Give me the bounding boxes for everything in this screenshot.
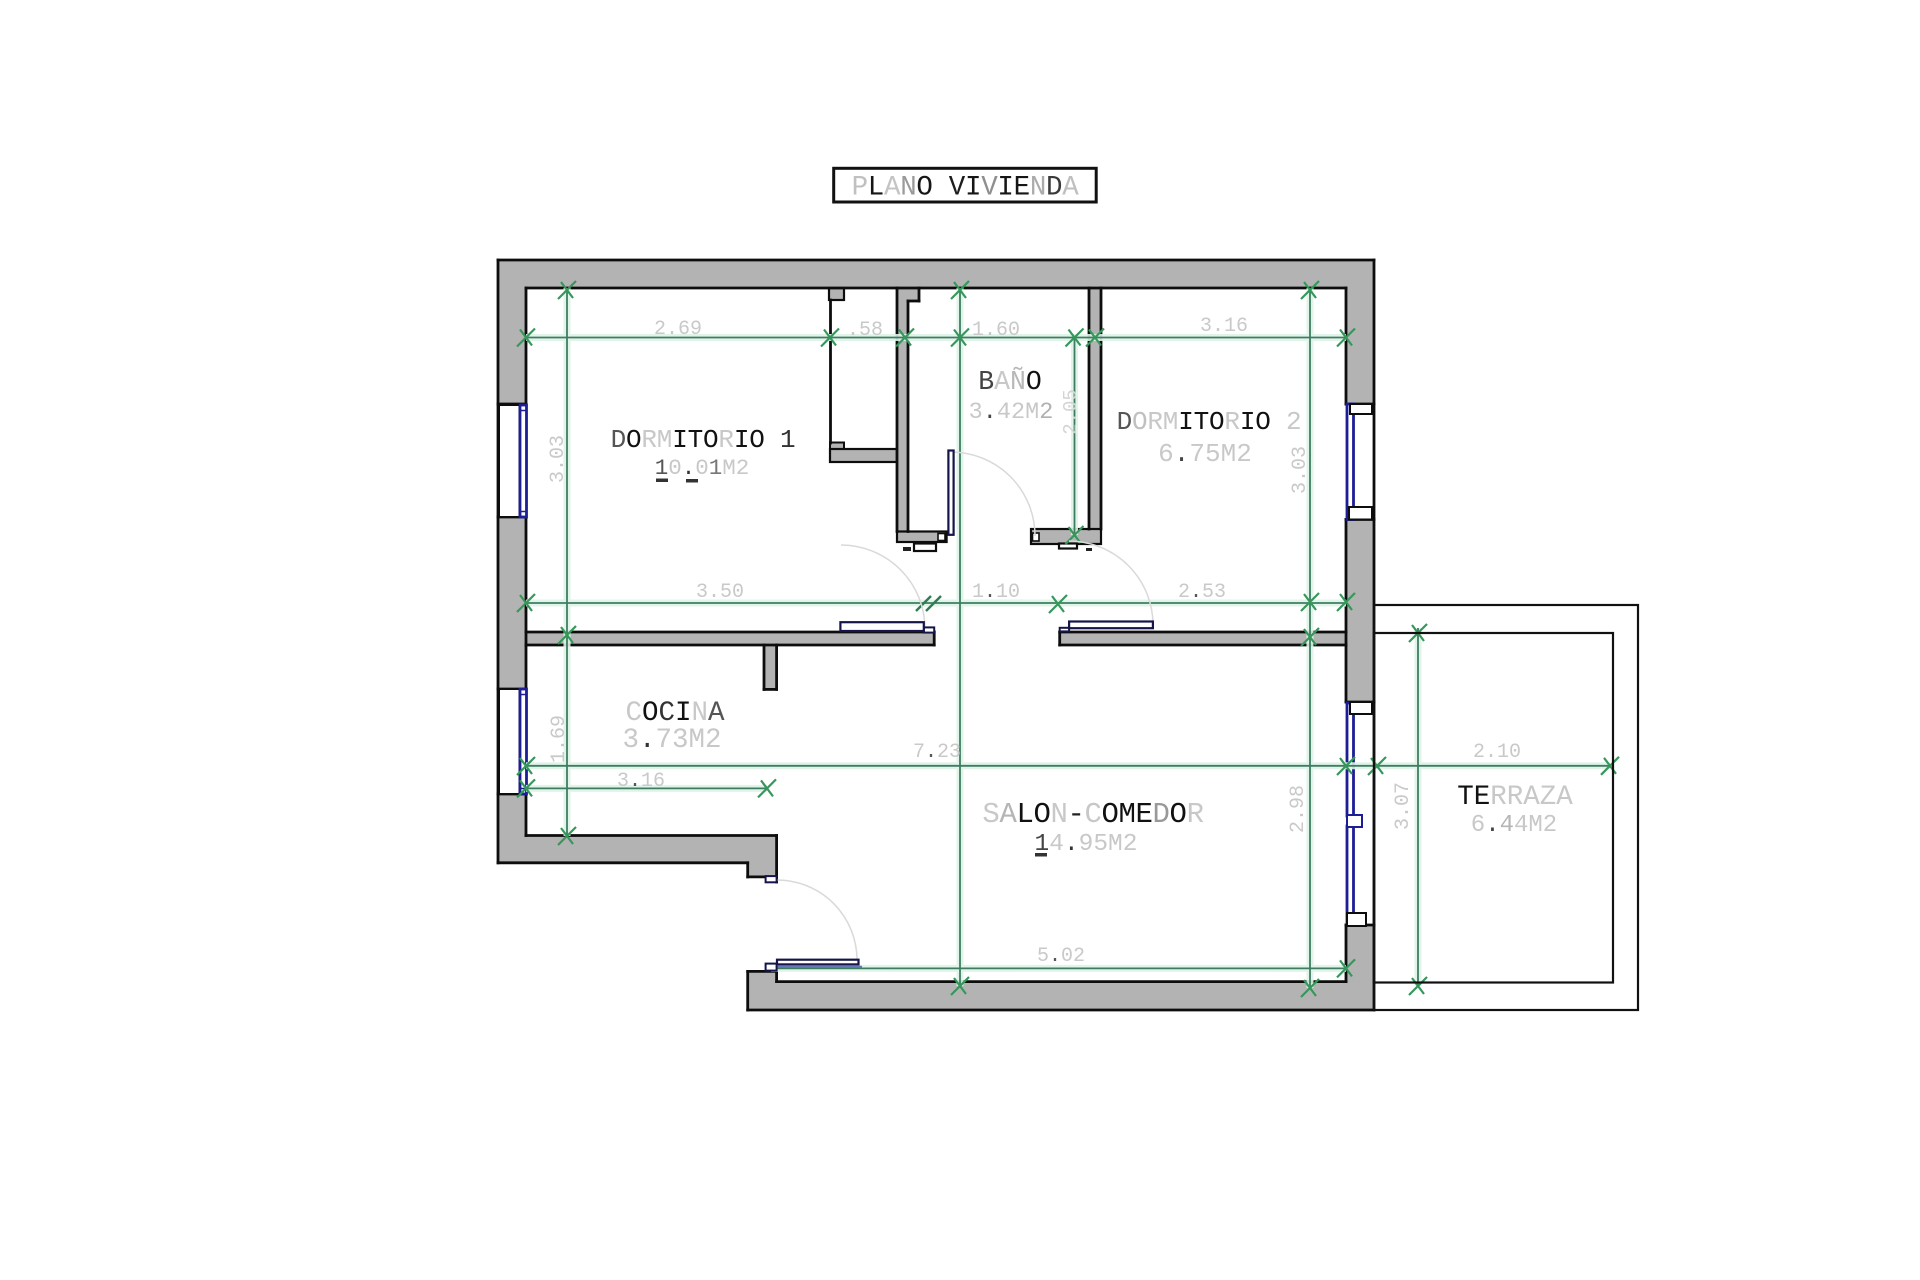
svg-text:3.03: 3.03 xyxy=(547,435,570,483)
svg-text:DORMITORIO 1: DORMITORIO 1 xyxy=(611,425,796,455)
svg-text:2.53: 2.53 xyxy=(1178,581,1226,604)
svg-text:3.16: 3.16 xyxy=(617,770,665,793)
svg-text:5.02: 5.02 xyxy=(1037,945,1085,968)
svg-text:3.16: 3.16 xyxy=(1200,315,1248,338)
svg-text:.58: .58 xyxy=(847,319,883,342)
svg-text:BAÑO: BAÑO xyxy=(978,367,1042,397)
svg-text:3.07: 3.07 xyxy=(1392,782,1415,830)
svg-text:2.98: 2.98 xyxy=(1287,785,1310,833)
svg-text:14.95M2: 14.95M2 xyxy=(1035,831,1138,858)
svg-text:PLANO VIVIENDA: PLANO VIVIENDA xyxy=(852,173,1080,204)
svg-text:2.05: 2.05 xyxy=(1060,389,1082,435)
svg-text:2.69: 2.69 xyxy=(654,318,702,341)
svg-text:3.73M2: 3.73M2 xyxy=(622,725,721,756)
svg-text:6.75M2: 6.75M2 xyxy=(1158,439,1252,469)
svg-text:7.23: 7.23 xyxy=(913,741,961,764)
svg-text:10.01M2: 10.01M2 xyxy=(655,455,750,481)
svg-text:1.60: 1.60 xyxy=(972,319,1020,342)
svg-text:3.50: 3.50 xyxy=(696,581,744,604)
svg-text:TERRAZA: TERRAZA xyxy=(1457,782,1573,813)
svg-text:2.10: 2.10 xyxy=(1473,741,1521,764)
svg-text:DORMITORIO 2: DORMITORIO 2 xyxy=(1117,407,1302,437)
svg-text:6.44M2: 6.44M2 xyxy=(1471,812,1557,839)
svg-text:3.03: 3.03 xyxy=(1289,446,1312,494)
svg-text:1.10: 1.10 xyxy=(972,581,1020,604)
svg-text:SALON-COMEDOR: SALON-COMEDOR xyxy=(982,798,1203,831)
svg-text:3.42M2: 3.42M2 xyxy=(969,399,1054,426)
svg-text:1.69: 1.69 xyxy=(548,715,571,763)
